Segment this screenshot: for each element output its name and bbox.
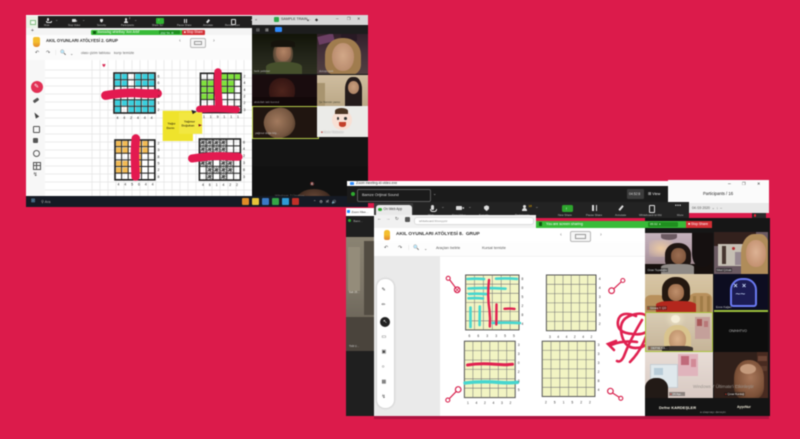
svg-text:4: 4	[151, 116, 153, 120]
svg-text:2: 2	[545, 401, 547, 405]
svg-text:3: 3	[518, 352, 520, 356]
svg-text:4: 4	[243, 147, 245, 151]
svg-text:4: 4	[522, 322, 524, 326]
svg-text:5: 5	[518, 388, 520, 392]
svg-text:5: 5	[504, 334, 506, 338]
svg-text:3: 3	[244, 108, 246, 112]
svg-text:1: 1	[230, 115, 232, 119]
svg-text:2: 2	[229, 183, 231, 187]
svg-text:Derin: Derin	[167, 126, 175, 130]
svg-text:1: 1	[223, 115, 225, 119]
svg-text:3: 3	[243, 161, 245, 165]
svg-text:2: 2	[598, 370, 600, 374]
svg-text:9: 9	[217, 115, 219, 119]
svg-text:Yağız: Yağız	[168, 122, 176, 126]
svg-text:8: 8	[158, 155, 160, 159]
svg-text:3: 3	[518, 343, 520, 347]
svg-text:1: 1	[216, 183, 218, 187]
svg-text:3: 3	[158, 148, 160, 152]
svg-text:2: 2	[130, 116, 132, 120]
svg-text:5: 5	[513, 334, 515, 338]
svg-text:3: 3	[158, 88, 160, 92]
svg-text:2: 2	[244, 101, 246, 105]
svg-text:4: 4	[124, 183, 126, 187]
svg-text:4: 4	[598, 388, 600, 392]
svg-text:4: 4	[557, 335, 559, 339]
svg-text:2: 2	[484, 401, 486, 405]
svg-text:4: 4	[493, 401, 495, 405]
svg-text:4: 4	[599, 277, 601, 281]
svg-text:2: 2	[518, 370, 520, 374]
svg-text:2: 2	[589, 401, 591, 405]
svg-text:8: 8	[522, 277, 524, 281]
svg-text:5: 5	[158, 162, 160, 166]
svg-text:4: 4	[476, 401, 478, 405]
svg-text:1: 1	[237, 115, 239, 119]
svg-text:4: 4	[152, 183, 154, 187]
svg-text:8: 8	[243, 168, 245, 172]
svg-text:3: 3	[599, 295, 601, 299]
svg-text:1: 1	[210, 115, 212, 119]
svg-text:2: 2	[236, 183, 238, 187]
svg-text:4: 4	[244, 81, 246, 85]
svg-text:8: 8	[598, 379, 600, 383]
svg-text:2: 2	[591, 335, 593, 339]
svg-text:4: 4	[244, 88, 246, 92]
svg-text:4: 4	[145, 183, 147, 187]
svg-text:6: 6	[477, 334, 479, 338]
svg-text:8: 8	[243, 141, 245, 145]
svg-text:4: 4	[137, 116, 139, 120]
svg-text:2: 2	[244, 75, 246, 79]
svg-text:1: 1	[158, 101, 160, 105]
svg-text:3: 3	[549, 335, 551, 339]
svg-text:4: 4	[202, 183, 204, 187]
svg-text:4: 4	[566, 335, 568, 339]
svg-text:2: 2	[510, 401, 512, 405]
svg-text:5: 5	[131, 183, 133, 187]
svg-text:4: 4	[117, 116, 119, 120]
svg-text:6: 6	[209, 183, 211, 187]
svg-text:5: 5	[571, 401, 573, 405]
svg-text:6: 6	[469, 334, 471, 338]
svg-text:4: 4	[118, 183, 120, 187]
svg-text:2: 2	[243, 154, 245, 158]
svg-text:3: 3	[158, 95, 160, 99]
svg-text:2: 2	[158, 142, 160, 146]
svg-text:3: 3	[518, 379, 520, 383]
svg-text:4: 4	[222, 183, 224, 187]
svg-text:4: 4	[582, 335, 584, 339]
svg-text:3: 3	[486, 334, 488, 338]
svg-text:1: 1	[563, 401, 565, 405]
svg-text:4: 4	[144, 116, 146, 120]
svg-text:6: 6	[138, 183, 140, 187]
svg-text:3: 3	[501, 401, 503, 405]
svg-text:5: 5	[554, 401, 556, 405]
svg-text:8: 8	[522, 313, 524, 317]
svg-text:2: 2	[574, 335, 576, 339]
svg-text:8: 8	[522, 286, 524, 290]
svg-text:2: 2	[580, 401, 582, 405]
svg-text:2: 2	[158, 168, 160, 172]
svg-text:8: 8	[158, 175, 160, 179]
svg-text:2: 2	[158, 108, 160, 112]
svg-text:1: 1	[203, 115, 205, 119]
svg-text:1: 1	[467, 401, 469, 405]
svg-text:2: 2	[522, 304, 524, 308]
svg-text:0: 0	[518, 361, 520, 365]
svg-text:6: 6	[158, 81, 160, 85]
svg-text:4: 4	[123, 116, 125, 120]
svg-text:6: 6	[158, 75, 160, 79]
svg-text:2: 2	[244, 95, 246, 99]
svg-text:Doğukan: Doğukan	[182, 124, 195, 128]
svg-text:3: 3	[243, 175, 245, 179]
svg-text:5: 5	[522, 295, 524, 299]
svg-text:4: 4	[599, 286, 601, 290]
svg-text:3: 3	[495, 334, 497, 338]
